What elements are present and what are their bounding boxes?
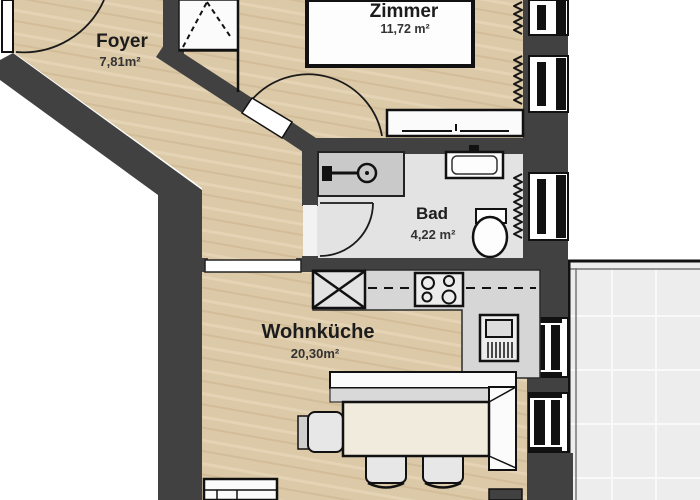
room-area-wohnkueche: 20,30m² xyxy=(291,346,340,361)
wall-bad-left-upper xyxy=(302,138,318,206)
wall-bottom-right-nub xyxy=(527,453,573,500)
stove-icon xyxy=(415,273,463,306)
dining-table xyxy=(343,402,489,456)
window-kitchen-2 xyxy=(529,393,568,452)
window-zimmer-2 xyxy=(529,56,568,112)
entrance-door-leaf xyxy=(2,0,13,52)
room-label-foyer: Foyer xyxy=(96,31,148,52)
fridge-icon xyxy=(480,315,518,361)
floor-plan-canvas: Foyer 7,81m² Zimmer 11,72 m² xyxy=(0,0,700,500)
bad-door-threshold xyxy=(303,205,317,256)
kitchen-sink-cabinet-icon xyxy=(313,271,365,308)
sideboard xyxy=(387,110,523,136)
toilet-icon xyxy=(473,209,507,257)
shower-icon xyxy=(318,152,404,196)
room-label-wohnkueche: Wohnküche xyxy=(262,321,375,343)
chair xyxy=(366,452,406,488)
sideboard-low xyxy=(204,479,277,500)
chair xyxy=(423,452,463,488)
balcony-floor xyxy=(566,262,700,500)
passage-threshold xyxy=(205,260,301,272)
room-area-bad: 4,22 m² xyxy=(411,227,456,242)
balcony xyxy=(562,260,700,500)
bottom-right-fixture xyxy=(489,489,522,500)
room-label-zimmer: Zimmer xyxy=(370,1,439,22)
window-bad xyxy=(529,173,568,240)
floor-plan: Foyer 7,81m² Zimmer 11,72 m² xyxy=(0,0,700,500)
chair xyxy=(298,412,343,452)
window-zimmer-1 xyxy=(529,0,568,35)
room-label-bad: Bad xyxy=(416,204,448,223)
wardrobe-icon xyxy=(179,0,238,51)
room-area-zimmer: 11,72 m² xyxy=(380,22,429,36)
room-area-foyer: 7,81m² xyxy=(99,54,141,69)
